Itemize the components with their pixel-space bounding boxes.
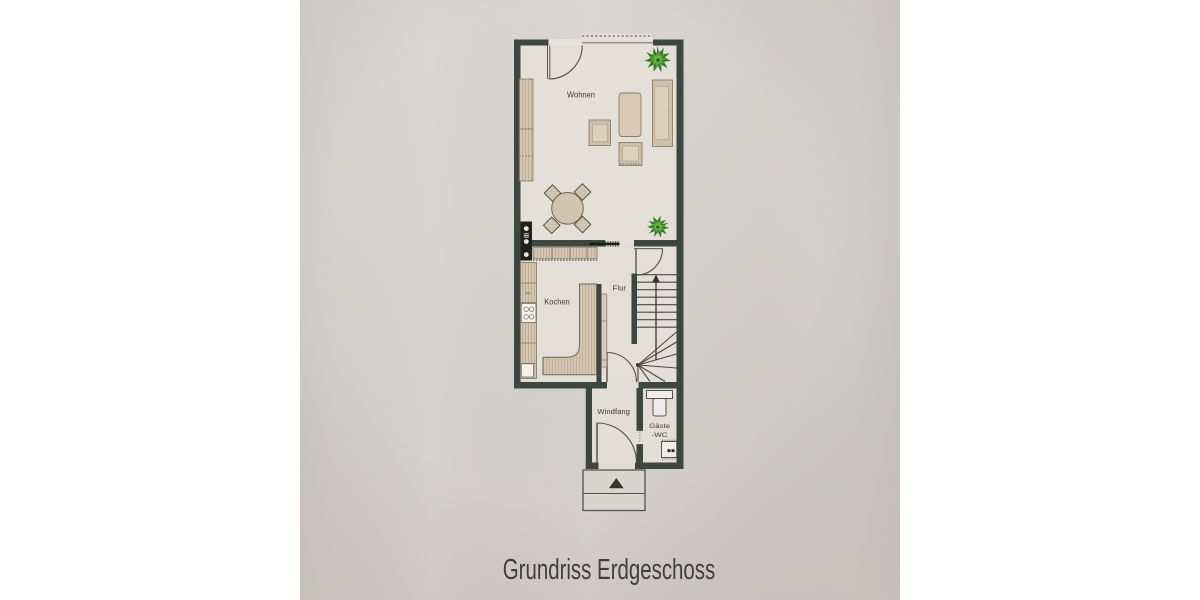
svg-text:Gäste: Gäste [649, 423, 670, 430]
svg-text:KS: KS [525, 292, 531, 296]
svg-text:Windfang: Windfang [597, 409, 630, 416]
svg-text:Flur: Flur [613, 284, 627, 293]
svg-text:Wohnen: Wohnen [567, 91, 595, 100]
svg-text:Kochen: Kochen [544, 298, 570, 307]
svg-text:Grundriss Erdgeschoss: Grundriss Erdgeschoss [503, 554, 716, 586]
svg-text:-WC: -WC [652, 432, 668, 439]
